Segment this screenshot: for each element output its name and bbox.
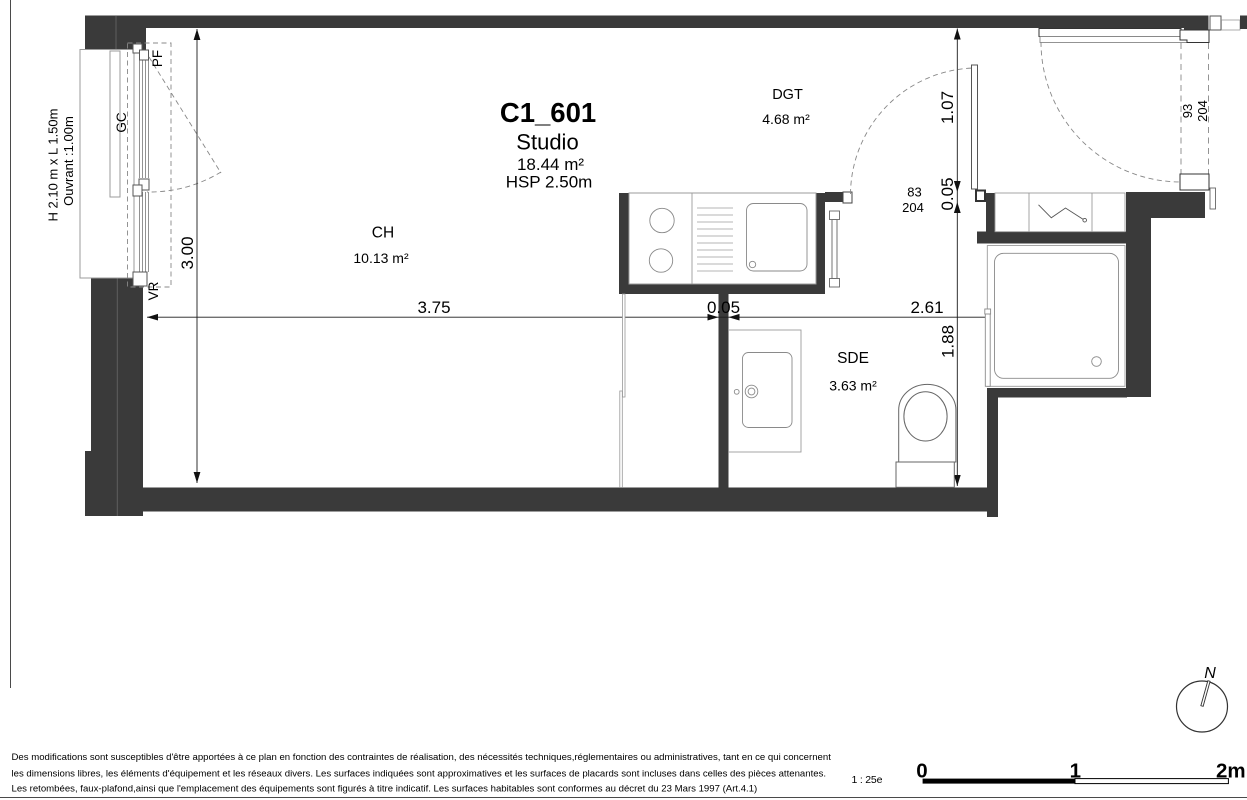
svg-text:0.05: 0.05 [938,177,957,210]
svg-text:Studio: Studio [516,130,578,155]
svg-text:N: N [1204,665,1216,682]
svg-text:83: 83 [907,185,921,200]
svg-text:3.75: 3.75 [417,298,450,317]
svg-text:les dimensions libres, les élé: les dimensions libres, les éléments d'éq… [12,768,827,779]
svg-text:0.05: 0.05 [707,298,740,317]
svg-text:93: 93 [1180,104,1195,118]
svg-text:3.63 m²: 3.63 m² [829,378,877,394]
svg-text:18.44 m²: 18.44 m² [517,155,584,174]
svg-text:204: 204 [1195,100,1210,122]
svg-text:C1_601: C1_601 [500,97,596,128]
svg-text:Des modifications sont suscept: Des modifications sont susceptibles d'êt… [12,752,832,763]
svg-text:10.13 m²: 10.13 m² [353,250,409,266]
svg-text:4.68 m²: 4.68 m² [762,111,810,127]
svg-text:CH: CH [372,225,394,242]
svg-text:1.88: 1.88 [939,325,958,358]
svg-text:H 2.10 m x L 1.50m: H 2.10 m x L 1.50m [46,109,61,222]
svg-text:3.00: 3.00 [178,236,197,269]
svg-text:Ouvrant :1.00m: Ouvrant :1.00m [61,116,76,206]
svg-text:1.07: 1.07 [938,91,957,124]
svg-text:SDE: SDE [837,350,869,367]
svg-text:HSP 2.50m: HSP 2.50m [506,173,593,192]
svg-text:2.61: 2.61 [910,298,943,317]
svg-text:GC: GC [114,112,129,133]
svg-text:DGT: DGT [772,87,803,103]
svg-text:PF: PF [150,50,165,67]
svg-text:VR: VR [146,281,161,300]
svg-text:Les retombées, faux-plafond,ai: Les retombées, faux-plafond,ainsi que l'… [12,783,758,794]
svg-text:1 : 25e: 1 : 25e [852,774,883,786]
svg-text:204: 204 [902,200,924,215]
